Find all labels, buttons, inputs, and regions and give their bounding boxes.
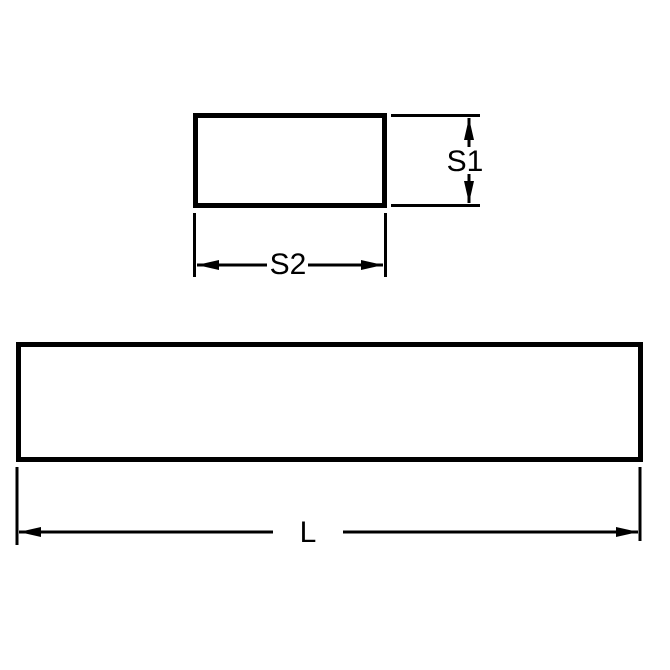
- side-profile-view: L: [17, 345, 641, 550]
- s1-dimension: S1: [391, 116, 483, 206]
- length-dimension-label: L: [300, 516, 317, 549]
- drawing-canvas: S1 S2 L: [0, 0, 670, 670]
- side-profile-rect: [19, 345, 641, 460]
- cross-section-view: S1 S2: [195, 116, 484, 282]
- technical-drawing: S1 S2 L: [0, 0, 670, 670]
- s2-dimension-label: S2: [270, 248, 307, 281]
- s2-dimension: S2: [195, 213, 386, 281]
- length-dimension: L: [17, 467, 640, 549]
- cross-section-rect: [196, 116, 385, 206]
- s1-dimension-label: S1: [447, 145, 484, 178]
